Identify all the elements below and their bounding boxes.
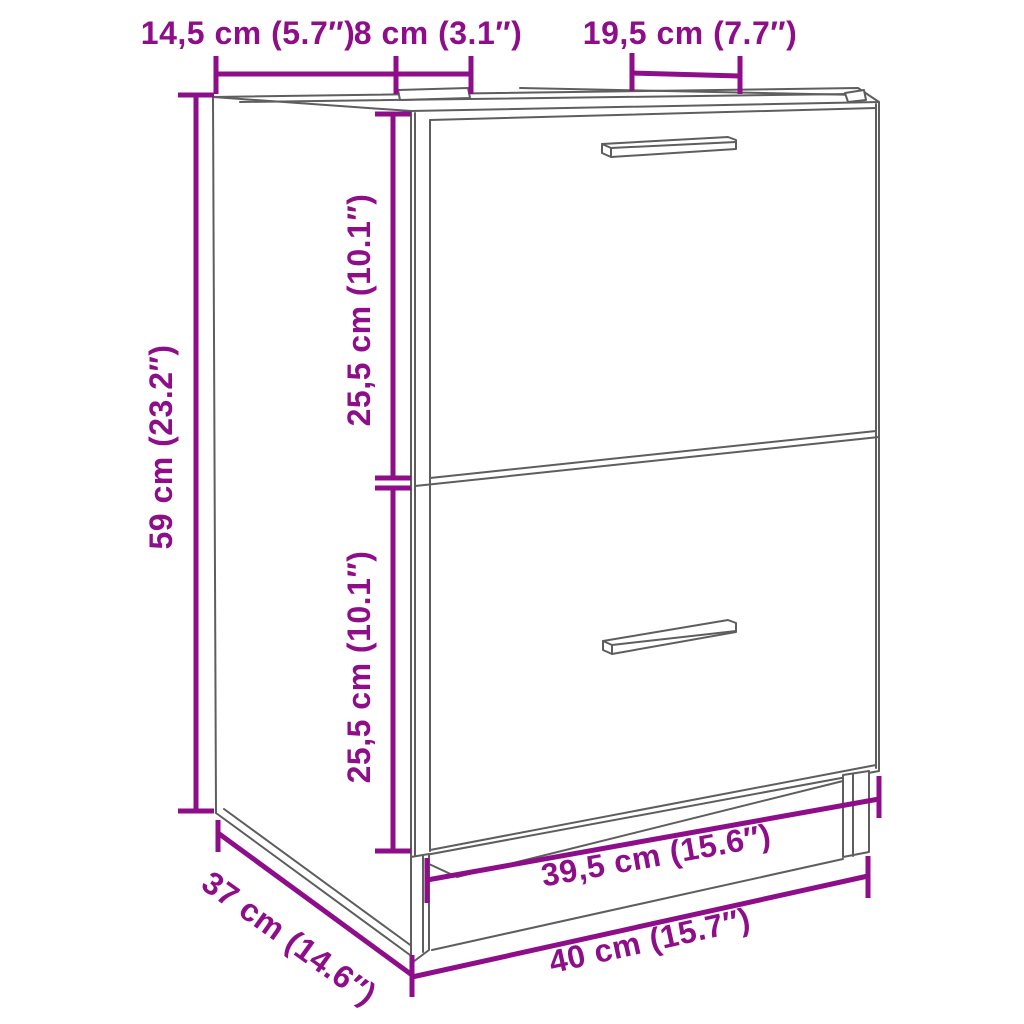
- label-top-section-left: 14,5 cm (5.7″): [141, 15, 355, 51]
- drawer-divider-upper: [430, 431, 876, 478]
- label-height: 59 cm (23.2″): [143, 344, 179, 549]
- dimension-labels: 14,5 cm (5.7″) 8 cm (3.1″) 19,5 cm (7.7″…: [141, 15, 797, 1012]
- label-upper-drawer-height: 25,5 cm (10.1″): [341, 194, 377, 427]
- dim-line-top-right: [632, 73, 740, 76]
- label-lower-drawer-height: 25,5 cm (10.1″): [341, 551, 377, 784]
- label-width: 40 cm (15.7″): [546, 900, 754, 980]
- label-top-section-middle: 8 cm (3.1″): [354, 15, 522, 51]
- cabinet-drawing: [213, 88, 879, 962]
- right-leg: [843, 771, 869, 857]
- diagram-canvas: 14,5 cm (5.7″) 8 cm (3.1″) 19,5 cm (7.7″…: [0, 0, 1024, 1024]
- drawer-divider-lower: [415, 437, 879, 486]
- label-top-section-right: 19,5 cm (7.7″): [583, 15, 797, 51]
- bottom-drawer-handle: [603, 620, 736, 654]
- dimension-lines: [178, 53, 879, 997]
- cabinet-left-side-edge: [213, 97, 216, 813]
- cabinet-top-right-cap: [845, 90, 866, 102]
- cabinet-top-face: [213, 88, 879, 111]
- cabinet-top-cutout: [398, 88, 470, 100]
- product-dimension-diagram: 14,5 cm (5.7″) 8 cm (3.1″) 19,5 cm (7.7″…: [0, 0, 1024, 1024]
